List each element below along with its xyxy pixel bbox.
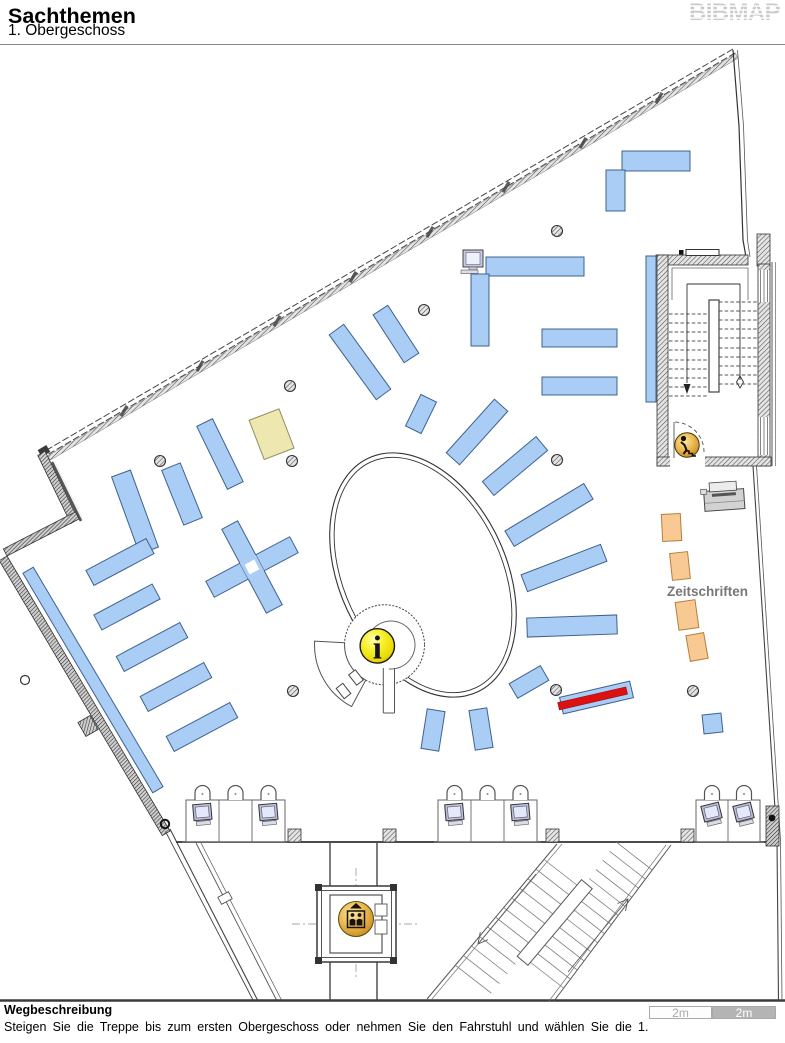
- svg-text:Zeitschriften: Zeitschriften: [667, 584, 748, 599]
- svg-text:i: i: [373, 630, 382, 666]
